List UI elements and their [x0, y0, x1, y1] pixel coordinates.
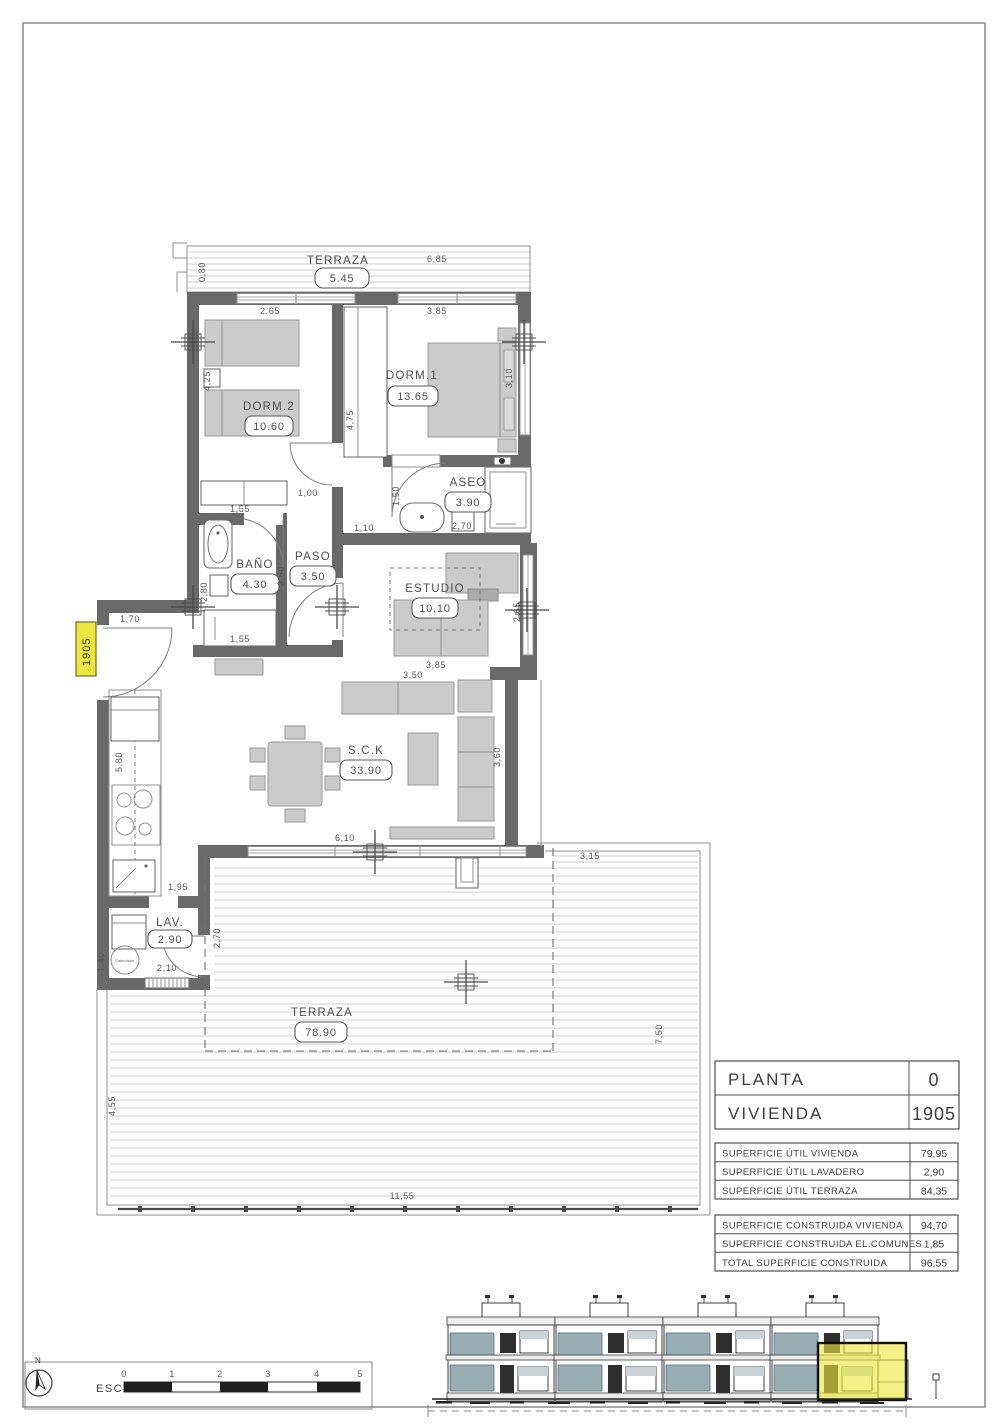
scale-bar-panel: N ESCALA : 0 1 2 3 4 5: [25, 1356, 372, 1409]
dim-estudio-height: 2,65: [512, 602, 522, 622]
built-row-0-value: 94,70: [921, 1220, 947, 1232]
dorm2-door: [290, 443, 332, 485]
util-row-2-label: SUPERFICIE ÚTIL TERRAZA: [722, 1186, 858, 1197]
dim-terraza-bottom-width: 11,55: [390, 1191, 415, 1201]
util-row-0-value: 79,95: [921, 1148, 947, 1160]
dim-terraza-right-offset: 3,15: [580, 851, 600, 861]
util-row-2-value: 84,35: [921, 1185, 947, 1197]
vent-grille: [145, 978, 189, 988]
sck-door: [289, 583, 343, 637]
top-terrace-area: 5.45: [330, 273, 355, 285]
dim-aseo-depth: 1,50: [391, 486, 401, 506]
dim-paso-height: 3,50: [276, 566, 286, 586]
dim-terraza-top-width: 6,85: [427, 254, 447, 264]
built-row-1-value: 1,85: [924, 1239, 945, 1251]
main-terrace-label: TERRAZA: [291, 1007, 353, 1019]
highlighted-unit: [818, 1343, 906, 1400]
paso-area: 3.50: [301, 571, 326, 583]
scale-tick-1: 1: [169, 1369, 175, 1379]
lav-area: 2.90: [158, 934, 183, 946]
room-estudio: ESTUDIO 10.10 3,85 2,65: [390, 553, 522, 670]
vivienda-label: VIVIENDA: [728, 1104, 823, 1123]
room-lav: Calentador LAV. 2.90 2,10 1,40: [96, 915, 192, 988]
building-elevation: [428, 1295, 939, 1417]
room-paso: PASO 3.50 3,50 1,10: [276, 523, 374, 586]
built-areas-table: SUPERFICIE CONSTRUIDA VIVIENDA 94,70 SUP…: [715, 1215, 958, 1271]
top-terrace-label: TERRAZA: [307, 255, 369, 267]
room-dorm1: DORM.1 13.65 3,85 3,10 4,75: [344, 306, 516, 457]
dim-estudio-width: 3,85: [426, 660, 446, 670]
estudio-label: ESTUDIO: [405, 583, 465, 595]
dim-lav-height: 1,40: [96, 952, 106, 972]
floor-plan-drawing: TERRAZA 6,85 5.45 0,80: [0, 0, 1006, 1425]
dim-bano-width: 1,55: [230, 634, 250, 644]
lav-label: LAV.: [156, 917, 184, 929]
dim-sck-height: 3,60: [492, 747, 502, 767]
built-row-2-label: TOTAL SUPERFICIE CONSTRUIDA: [722, 1258, 888, 1269]
dorm2-label: DORM.2: [243, 401, 295, 413]
built-row-0-label: SUPERFICIE CONSTRUIDA VIVIENDA: [722, 1221, 903, 1232]
window-estudio-side: [523, 555, 533, 655]
dorm1-area: 13.65: [397, 391, 429, 403]
unit-tag-number: 1905: [81, 638, 93, 666]
dorm1-label: DORM.1: [386, 370, 438, 382]
dim-terraza-top-depth: 0,80: [197, 262, 207, 282]
scale-tick-4: 4: [314, 1369, 320, 1379]
window-dorm1-side: [520, 323, 530, 435]
util-row-0-label: SUPERFICIE ÚTIL VIVIENDA: [722, 1149, 859, 1160]
estudio-area: 10.10: [419, 603, 451, 615]
dim-dorm1-width: 3,85: [427, 306, 447, 316]
scale-ruler: 0 1 2 3 4 5: [121, 1369, 363, 1392]
sck-label: S.C.K: [348, 745, 384, 757]
dim-dorm1-height: 3,10: [504, 368, 514, 388]
entry-door: [103, 628, 172, 697]
north-label: N: [35, 1356, 41, 1365]
util-areas-table: SUPERFICIE ÚTIL VIVIENDA 79,95 SUPERFICI…: [715, 1143, 958, 1199]
scale-tick-2: 2: [217, 1369, 223, 1379]
util-row-1-label: SUPERFICIE ÚTIL LAVADERO: [722, 1167, 864, 1178]
dim-sck-window: 6,10: [335, 833, 355, 843]
main-terrace-area: 78.90: [305, 1027, 337, 1039]
dim-aseo-width: 2,70: [452, 521, 472, 531]
dim-paso-width: 1,10: [354, 523, 374, 533]
dim-dorm2-height: 4,25: [202, 371, 212, 391]
dim-terraza-left-height: 4,55: [107, 1096, 117, 1116]
dorm2-area: 10.60: [253, 421, 285, 433]
dim-sofa-width: 3,50: [403, 670, 423, 680]
built-row-2-value: 96,55: [921, 1257, 947, 1269]
dim-lav-width: 2,10: [157, 963, 177, 973]
kitchen: 5,80 1,95: [109, 690, 188, 896]
window-dorm2: [237, 294, 355, 304]
planta-label: PLANTA: [728, 1070, 805, 1089]
title-block: PLANTA 0 VIVIENDA 1905 SUPERFICIE ÚTIL V…: [715, 1061, 959, 1271]
scale-tick-3: 3: [265, 1369, 271, 1379]
unit-tag: 1905: [76, 622, 96, 676]
top-terrace: TERRAZA 6,85 5.45 0,80: [173, 243, 530, 292]
dim-terraza-right-height: 7,50: [654, 1024, 664, 1044]
bano-area: 4.30: [243, 579, 268, 591]
bano-label: BAÑO: [236, 558, 273, 571]
scale-tick-0: 0: [121, 1369, 127, 1379]
plan-sheet: { "plan": { "tag": "1905", "lav_heater_l…: [0, 0, 1006, 1425]
dim-dorm2-wardrobe: 1,55: [230, 504, 250, 514]
dim-entry-width: 1,70: [120, 614, 140, 624]
sck-area: 33.90: [350, 765, 382, 777]
scale-tick-5: 5: [357, 1369, 363, 1379]
dim-lav-depth: 2,70: [212, 928, 222, 948]
room-dorm2: 1,55 DORM.2 10.60 2,65 4,25 1,00: [201, 306, 318, 514]
main-terrace: 3,15 7,50 4,55 11,55 2,70 TERRAZA 78.90: [97, 680, 710, 1215]
dim-kitchen-width: 1,95: [168, 882, 188, 892]
dim-dorm2-width: 2,65: [260, 306, 280, 316]
aseo-label: ASEO: [450, 477, 487, 489]
dim-closet-height: 4,75: [345, 410, 355, 430]
window-dorm1: [398, 294, 516, 304]
util-row-1-value: 2,90: [924, 1167, 945, 1179]
dim-paso-door: 1,00: [298, 488, 318, 498]
planta-value: 0: [928, 1070, 939, 1090]
aseo-area: 3.90: [456, 497, 481, 509]
dim-kitchen-height: 5,80: [114, 752, 124, 772]
paso-label: PASO: [295, 551, 331, 563]
room-aseo: ASEO 3.90 1,50 2,70: [391, 457, 531, 533]
vivienda-value: 1905: [912, 1104, 956, 1124]
built-row-1-label: SUPERFICIE CONSTRUIDA EL.COMUNES: [722, 1239, 922, 1250]
heater-label: Calentador: [115, 958, 135, 963]
